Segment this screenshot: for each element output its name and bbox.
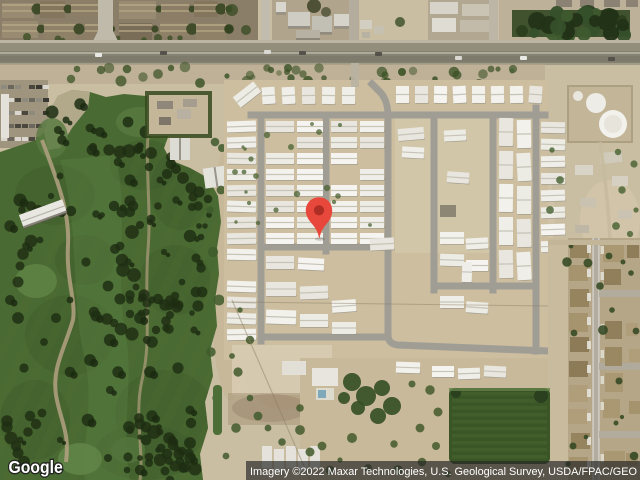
svg-text:Google: Google xyxy=(8,457,62,477)
svg-text:Imagery ©2022 Maxar Technologi: Imagery ©2022 Maxar Technologies, U.S. G… xyxy=(250,466,637,478)
